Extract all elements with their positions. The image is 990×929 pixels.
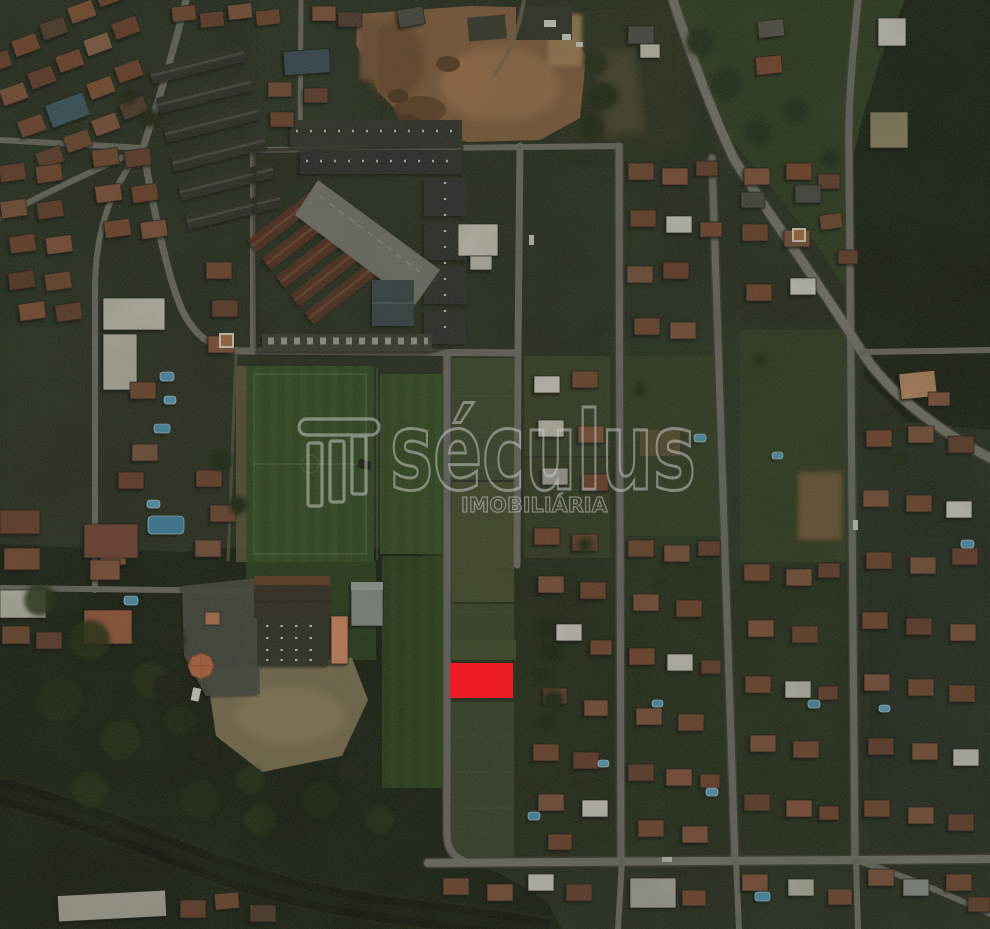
satellite-canvas: séculus IMOBILIÁRIA <box>0 0 990 929</box>
highlighted-lot-marker <box>450 663 513 698</box>
satellite-photo: séculus IMOBILIÁRIA <box>0 0 990 929</box>
watermark-brand-subtitle: IMOBILIÁRIA <box>461 492 613 517</box>
